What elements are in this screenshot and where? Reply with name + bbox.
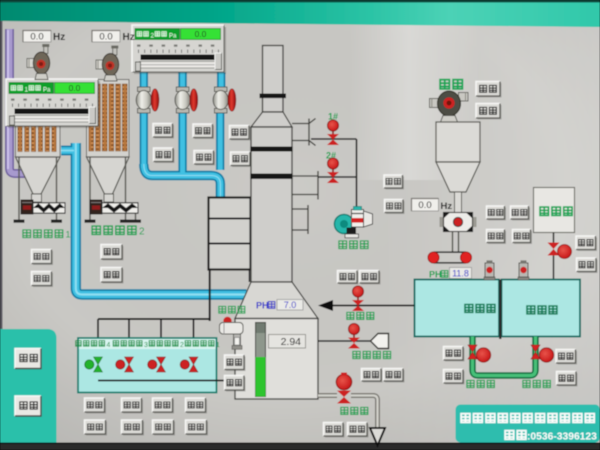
svg-text:0.0: 0.0 — [195, 29, 207, 39]
svg-text:Pa: Pa — [169, 33, 177, 39]
svg-text:2: 2 — [139, 227, 145, 238]
svg-text:11.8: 11.8 — [452, 268, 469, 278]
svg-text:2: 2 — [180, 342, 184, 349]
svg-text:1: 1 — [66, 230, 71, 240]
svg-text:1: 1 — [25, 86, 29, 93]
svg-text:0.0: 0.0 — [69, 83, 81, 93]
svg-text:PH: PH — [429, 270, 442, 280]
svg-text:4: 4 — [107, 342, 111, 349]
svg-text:0.0: 0.0 — [99, 32, 112, 43]
svg-text:Pa: Pa — [43, 87, 51, 93]
svg-text:2: 2 — [151, 32, 155, 39]
svg-text:1: 1 — [216, 342, 220, 349]
svg-text:Hz: Hz — [123, 32, 135, 43]
svg-text:0.0: 0.0 — [30, 32, 43, 43]
svg-text:7.0: 7.0 — [284, 300, 297, 310]
svg-text:Hz: Hz — [441, 201, 453, 212]
svg-text:2.94: 2.94 — [281, 336, 302, 348]
svg-text:3: 3 — [144, 342, 148, 349]
svg-text::0536-3396123: :0536-3396123 — [527, 431, 597, 442]
svg-text:Hz: Hz — [53, 32, 65, 43]
svg-text:0.0: 0.0 — [418, 200, 431, 211]
svg-text:PH: PH — [256, 301, 269, 311]
